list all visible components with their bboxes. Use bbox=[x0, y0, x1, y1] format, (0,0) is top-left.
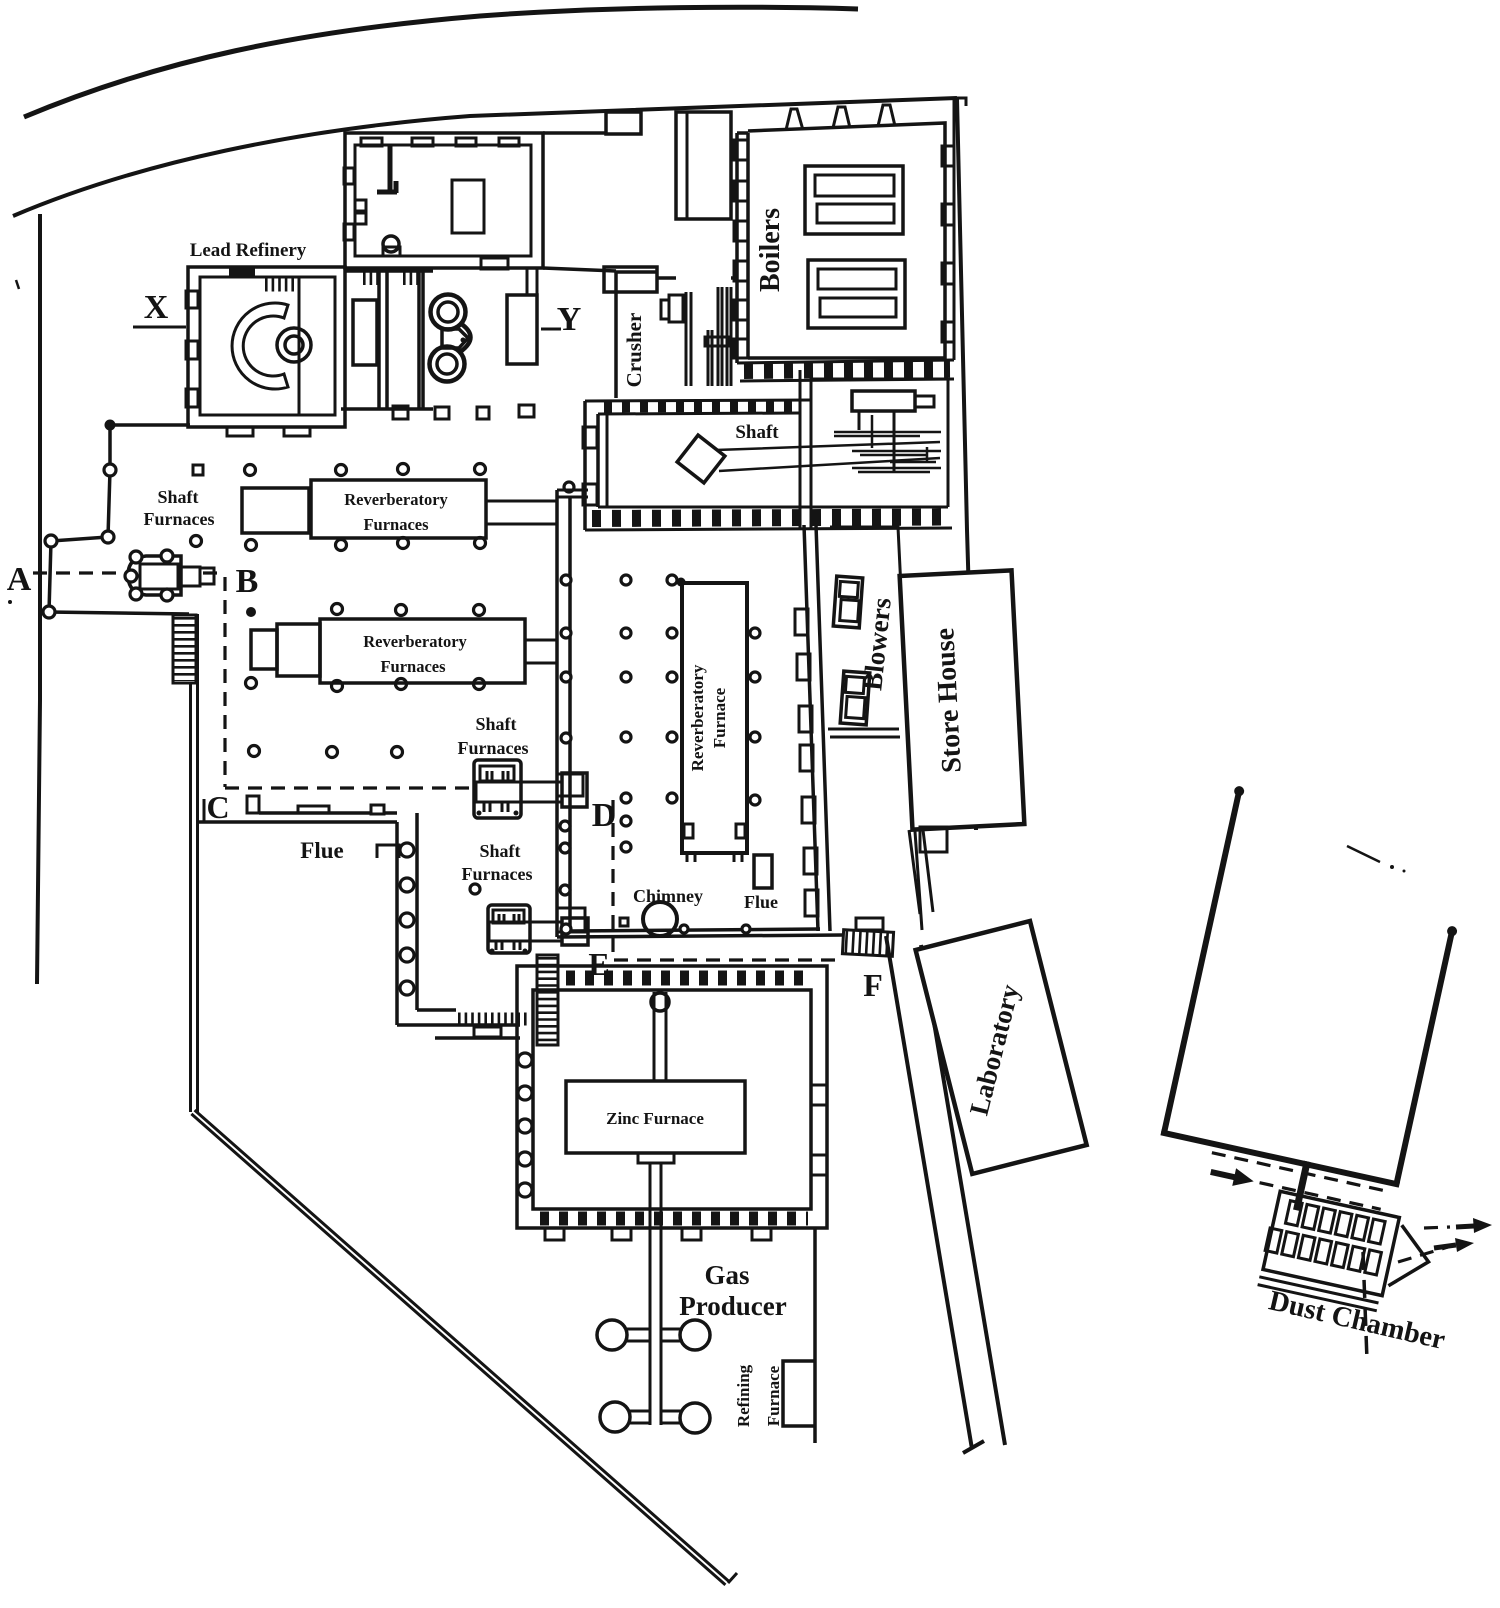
svg-text:Boilers: Boilers bbox=[755, 208, 786, 292]
svg-text:Shaft: Shaft bbox=[475, 714, 516, 734]
svg-text:Furnaces: Furnaces bbox=[458, 738, 529, 758]
svg-text:Furnaces: Furnaces bbox=[144, 509, 215, 529]
svg-text:Furnaces: Furnaces bbox=[462, 864, 533, 884]
svg-text:Lead Refinery: Lead Refinery bbox=[190, 240, 307, 261]
svg-text:Reverberatory: Reverberatory bbox=[363, 632, 467, 651]
svg-text:B: B bbox=[236, 563, 259, 600]
svg-text:F: F bbox=[863, 967, 883, 1003]
svg-text:Furnace: Furnace bbox=[710, 687, 729, 748]
svg-text:Flue: Flue bbox=[300, 838, 343, 863]
svg-text:Crusher: Crusher bbox=[622, 313, 646, 388]
svg-text:Zinc Furnace: Zinc Furnace bbox=[606, 1109, 704, 1128]
svg-text:Reverberatory: Reverberatory bbox=[344, 490, 448, 509]
svg-text:Furnaces: Furnaces bbox=[380, 657, 446, 676]
svg-text:Shaft: Shaft bbox=[479, 841, 520, 861]
svg-text:Flue: Flue bbox=[744, 892, 778, 912]
svg-text:Refining: Refining bbox=[734, 1364, 753, 1427]
svg-text:C: C bbox=[206, 789, 229, 825]
svg-text:Shaft: Shaft bbox=[157, 487, 198, 507]
svg-text:A: A bbox=[7, 561, 32, 598]
svg-text:X: X bbox=[144, 289, 169, 326]
svg-text:Furnace: Furnace bbox=[764, 1365, 783, 1426]
svg-text:Gas: Gas bbox=[704, 1260, 749, 1290]
svg-text:Y: Y bbox=[557, 301, 582, 338]
svg-text:Reverberatory: Reverberatory bbox=[688, 664, 707, 771]
svg-text:Producer: Producer bbox=[679, 1291, 786, 1321]
svg-text:Shaft: Shaft bbox=[735, 422, 779, 443]
svg-text:Furnaces: Furnaces bbox=[363, 515, 429, 534]
